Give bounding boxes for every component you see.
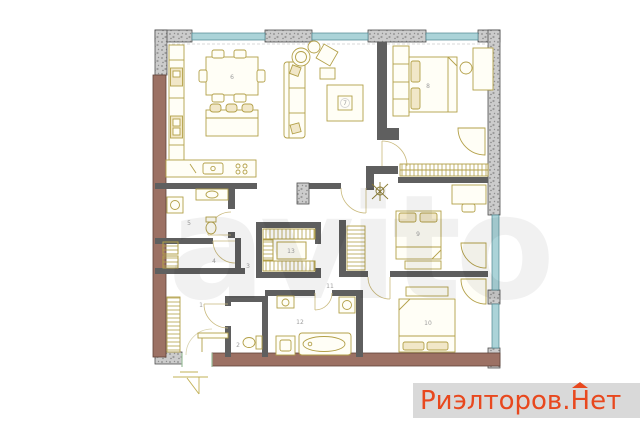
bed	[409, 57, 457, 112]
sofa	[284, 62, 305, 138]
wall-pier	[368, 30, 426, 42]
house-roof-icon	[572, 382, 588, 388]
bathtub	[299, 333, 351, 355]
floor-plan-image: 1 2 3 4 5 6 7 8 9 10 11 12 13 avito	[0, 0, 640, 426]
desk-chair	[460, 62, 472, 74]
window	[312, 33, 368, 40]
kitchen-dining-furniture	[166, 45, 265, 177]
window	[192, 33, 265, 40]
brand-text-suffix: ет	[590, 388, 621, 414]
brand-text-prefix: Риэлторов.	[420, 388, 571, 414]
wardrobe	[393, 46, 409, 116]
brand-watermark: Риэлторов.Нет	[413, 383, 640, 418]
entrance-stairs	[173, 372, 208, 394]
toilet	[243, 336, 262, 349]
wall-left-brick	[153, 75, 166, 357]
wall-left-top	[155, 30, 167, 75]
living-room-furniture	[284, 41, 363, 138]
kitchen-tall-unit	[169, 45, 184, 160]
room-label-living: 7	[343, 100, 347, 107]
desk	[460, 48, 493, 90]
room-label-kitchen-dining: 6	[230, 74, 234, 81]
room-label-bedroom-1: 8	[426, 83, 430, 90]
shower-tray	[276, 336, 295, 355]
console-table	[198, 333, 228, 352]
lounge-chair-round	[292, 41, 320, 66]
kitchen-island	[206, 104, 258, 136]
wc-furniture	[243, 336, 262, 349]
wall-pier	[265, 30, 312, 42]
brand-house-letter: Н	[571, 388, 591, 414]
avito-watermark: avito	[168, 164, 549, 333]
room-label-wc: 2	[236, 342, 240, 349]
bedroom-1-furniture	[393, 46, 493, 176]
fan-armchair	[458, 128, 485, 155]
door-bedroom-1	[382, 141, 407, 166]
window	[426, 33, 478, 40]
